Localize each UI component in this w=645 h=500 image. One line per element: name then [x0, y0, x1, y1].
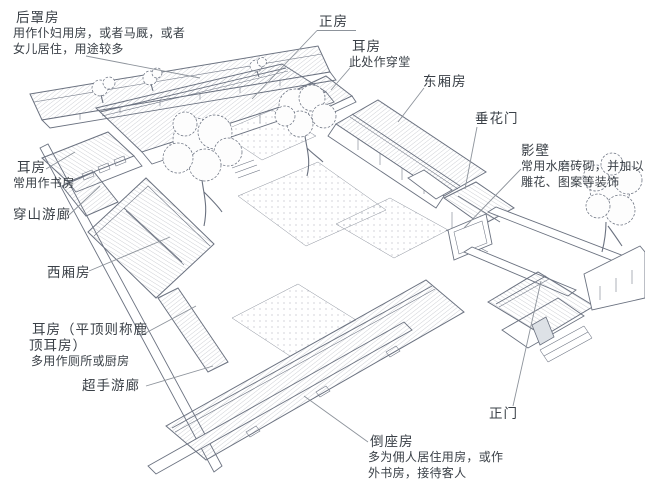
label-title: 正门 — [489, 406, 518, 422]
leader-east-wing — [398, 88, 424, 122]
label-title: 垂花门 — [475, 111, 519, 127]
label-west-wing: 西厢房 — [47, 265, 91, 281]
label-desc-line: 用作仆妇用房，或者马厩，或者 — [13, 26, 185, 42]
siheyuan-axonometric-drawing — [0, 0, 645, 500]
label-desc-line: 常用作书房 — [13, 176, 75, 192]
label-title: 超手游廊 — [82, 378, 140, 394]
label-title: 耳房 — [17, 160, 75, 176]
label-title: 西厢房 — [47, 265, 91, 281]
folded-corridor-structure — [158, 288, 228, 372]
label-title: 东厢房 — [423, 74, 467, 90]
label-screen-wall: 影壁 常用水磨砖砌，并加以 雕花、图案等装饰 — [521, 143, 644, 190]
label-desc-line: 多为佣人居住用房，或作 — [368, 450, 503, 466]
label-front-building: 倒座房 多为佣人居住用房，或作 外书房，接待客人 — [370, 434, 503, 481]
label-through-hill-corridor: 穿山游廊 — [13, 207, 71, 223]
label-east-wing: 东厢房 — [423, 74, 467, 90]
label-desc-line: 常用水磨砖砌，并加以 — [521, 159, 644, 175]
label-title: 影壁 — [521, 143, 644, 159]
label-folded-corridor: 超手游廊 — [82, 378, 140, 394]
label-title: 耳房（平顶则称鹿 — [32, 322, 148, 338]
label-ear-room-flat: 耳房（平顶则称鹿 顶耳房） 多用作厕所或厨房 — [32, 322, 148, 370]
label-rear-building: 后罩房 用作仆妇用房，或者马厩，或者 女儿居住，用途较多 — [16, 10, 185, 57]
label-title: 耳房 — [352, 39, 411, 55]
label-desc-line: 此处作穿堂 — [349, 55, 411, 71]
label-title-line2: 顶耳房） — [29, 338, 148, 354]
label-ear-room-study: 耳房 常用作书房 — [17, 160, 75, 192]
leader-front-building — [304, 396, 368, 442]
leader-folded-corridor — [146, 366, 213, 386]
label-main-gate: 正门 — [489, 406, 518, 422]
diagram-canvas: 后罩房 用作仆妇用房，或者马厩，或者 女儿居住，用途较多 正房 耳房 此处作穿堂… — [0, 0, 645, 500]
label-desc-line: 女儿居住，用途较多 — [13, 42, 185, 58]
label-title: 穿山游廊 — [13, 207, 71, 223]
label-desc-line: 多用作厕所或厨房 — [31, 354, 148, 370]
label-title: 后罩房 — [16, 10, 185, 26]
label-title: 倒座房 — [370, 434, 503, 450]
label-main-hall: 正房 — [319, 14, 348, 30]
label-festoon-gate: 垂花门 — [475, 111, 519, 127]
main-gate-structure — [488, 272, 594, 362]
label-desc-line: 外书房，接待客人 — [368, 466, 503, 482]
label-ear-room-passage: 耳房 此处作穿堂 — [352, 39, 411, 71]
label-desc-line: 雕花、图案等装饰 — [521, 175, 644, 191]
label-title: 正房 — [319, 14, 348, 30]
